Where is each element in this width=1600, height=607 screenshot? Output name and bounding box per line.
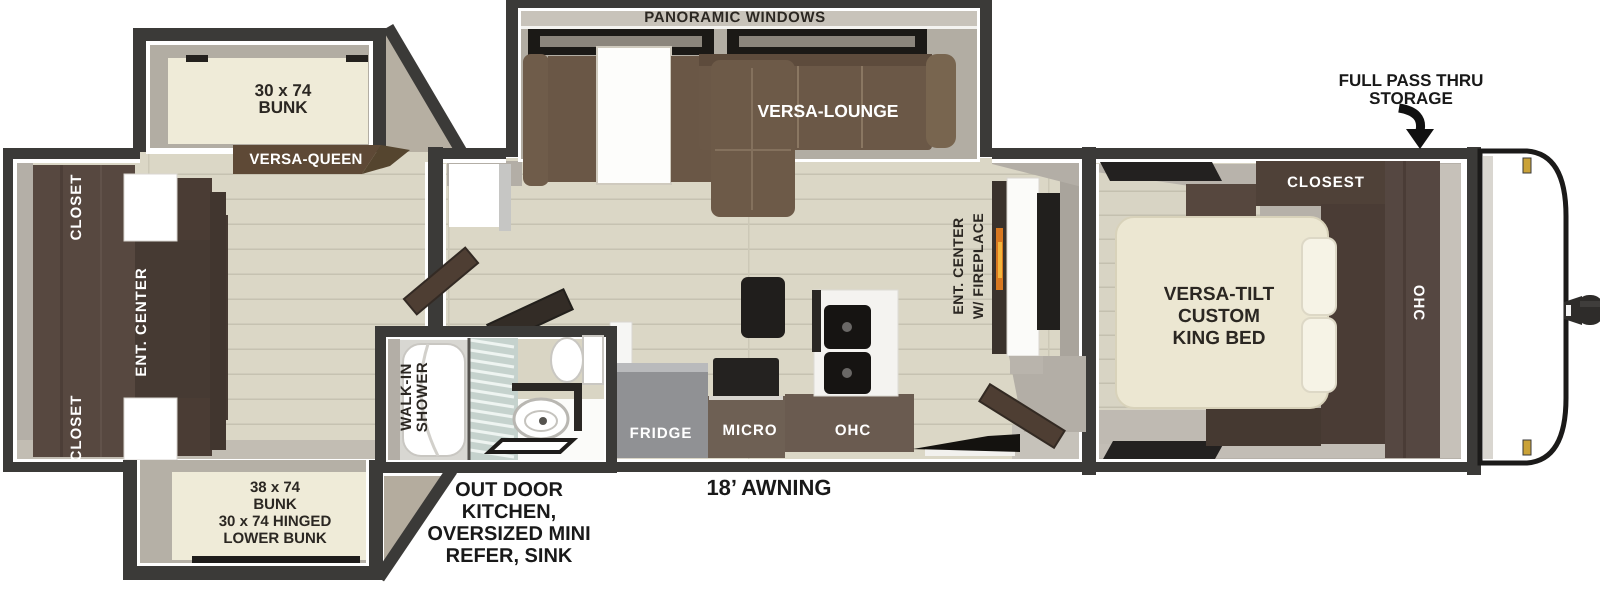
svg-text:ENT. CENTER: ENT. CENTER [950,217,966,314]
svg-text:STORAGE: STORAGE [1369,89,1453,108]
svg-text:W/ FIREPLACE: W/ FIREPLACE [970,213,986,319]
svg-text:ENT. CENTER: ENT. CENTER [133,267,150,376]
svg-text:KING BED: KING BED [1173,328,1266,349]
svg-text:MICRO: MICRO [723,422,778,439]
svg-text:FULL PASS THRU: FULL PASS THRU [1339,71,1484,90]
svg-text:REFER, SINK: REFER, SINK [446,545,573,567]
svg-text:SHOWER: SHOWER [414,362,431,433]
svg-text:CUSTOM: CUSTOM [1178,306,1260,327]
svg-text:VERSA-QUEEN: VERSA-QUEEN [249,151,362,168]
svg-text:LOWER BUNK: LOWER BUNK [223,530,326,547]
svg-text:CLOSET: CLOSET [68,174,85,241]
svg-text:KITCHEN,: KITCHEN, [462,501,556,523]
svg-text:CLOSET: CLOSET [68,395,85,462]
svg-text:WALK-IN: WALK-IN [398,363,415,431]
svg-text:PANORAMIC WINDOWS: PANORAMIC WINDOWS [644,9,826,26]
svg-text:FRIDGE: FRIDGE [630,425,693,442]
svg-text:VERSA-TILT: VERSA-TILT [1164,284,1275,305]
svg-text:18’ AWNING: 18’ AWNING [706,475,831,500]
svg-text:BUNK: BUNK [258,98,308,117]
svg-text:OHC: OHC [1410,285,1427,321]
svg-text:OVERSIZED MINI: OVERSIZED MINI [427,523,590,545]
svg-text:30 x 74 HINGED: 30 x 74 HINGED [219,513,332,530]
svg-text:38 x 74: 38 x 74 [250,479,301,496]
svg-text:CLOSEST: CLOSEST [1287,174,1365,191]
svg-text:OUT DOOR: OUT DOOR [455,479,563,501]
svg-text:BUNK: BUNK [253,496,296,513]
svg-text:OHC: OHC [835,422,871,439]
svg-text:VERSA-LOUNGE: VERSA-LOUNGE [758,101,899,121]
